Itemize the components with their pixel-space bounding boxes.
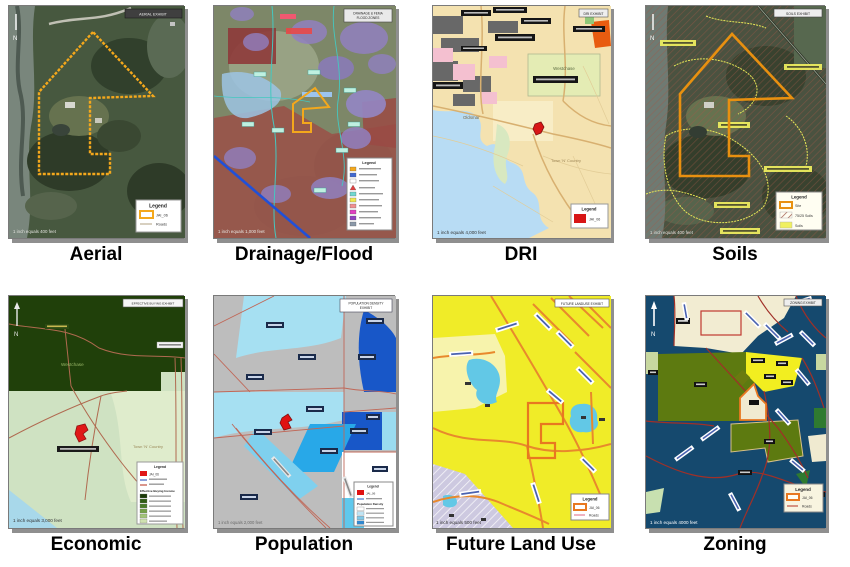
svg-text:SOILS EXHIBIT: SOILS EXHIBIT (786, 12, 810, 16)
svg-text:Legend: Legend (795, 487, 811, 492)
exhibit-title-box: POPULATION DENSITY EXHIBIT (340, 299, 392, 312)
exhibit-title-box: ZONING EXHIBIT (784, 299, 822, 306)
exhibit-title-box: FUTURE LANDUSE EXHIBIT (555, 299, 609, 307)
svg-text:JAI_06: JAI_06 (802, 496, 813, 500)
map-card-aerial: N AERIAL EXHIBIT Legend JAI_06 Roads 1 i… (8, 5, 184, 265)
svg-text:N: N (650, 36, 654, 42)
legend-box: Legend JAI_06 (571, 204, 608, 228)
map-card-population: POPULATION DENSITY EXHIBIT Legend JAI_06… (213, 295, 395, 555)
map-caption-aerial: Aerial (8, 245, 184, 265)
svg-text:FUTURE LANDUSE EXHIBIT: FUTURE LANDUSE EXHIBIT (561, 302, 603, 306)
legend-box: Legend JAI_06 Roads (136, 200, 181, 232)
svg-text:Legend: Legend (149, 204, 167, 210)
svg-text:EXHIBIT: EXHIBIT (360, 306, 372, 310)
scale-text: 1 inch equals 4,000 feet (437, 230, 487, 235)
svg-text:Legend: Legend (791, 195, 807, 200)
svg-text:Legend: Legend (154, 465, 166, 469)
exhibit-grid: N AERIAL EXHIBIT Legend JAI_06 Roads 1 i… (0, 0, 850, 567)
svg-text:Legend: Legend (582, 207, 597, 212)
map-caption-economic: Economic (8, 535, 184, 555)
map-thumbnail-population[interactable]: POPULATION DENSITY EXHIBIT Legend JAI_06… (213, 295, 395, 529)
legend-box: Legend (347, 158, 392, 230)
svg-text:Roads: Roads (589, 514, 599, 518)
svg-text:N: N (13, 36, 17, 42)
legend-box: Legend Site 75/25 Soils Soils (776, 192, 822, 230)
svg-text:Town 'N' Country: Town 'N' Country (551, 158, 581, 163)
exhibit-title-box: DRI EXHIBIT (579, 9, 608, 17)
svg-text:Oldsmar: Oldsmar (463, 115, 480, 120)
svg-text:Site: Site (795, 204, 801, 208)
svg-text:EFFECTIVE BUYING EXHIBIT: EFFECTIVE BUYING EXHIBIT (132, 302, 175, 306)
map-thumbnail-aerial[interactable]: N AERIAL EXHIBIT Legend JAI_06 Roads 1 i… (8, 5, 184, 239)
exhibit-title-box: SOILS EXHIBIT (774, 9, 822, 17)
legend-box: Legend JAI_06 Roads (784, 484, 823, 512)
scale-text: 1 inch equals 400 feet (650, 230, 694, 235)
map-art: Westchase Oldsmar Town 'N' Country (433, 6, 611, 238)
map-caption-zoning: Zoning (645, 535, 825, 555)
svg-text:N: N (14, 332, 18, 338)
svg-text:AERIAL EXHIBIT: AERIAL EXHIBIT (139, 13, 167, 17)
map-card-dri: Westchase Oldsmar Town 'N' Country DRI E… (432, 5, 610, 265)
map-card-zoning: N ZONING EXHIBIT Legend JAI_06 Roads 1 i… (645, 295, 825, 555)
svg-text:N: N (651, 332, 655, 338)
svg-text:75/25 Soils: 75/25 Soils (795, 214, 813, 218)
svg-text:JAI_06: JAI_06 (589, 506, 600, 510)
svg-text:Legend: Legend (583, 497, 598, 502)
exhibit-title-box: EFFECTIVE BUYING EXHIBIT (123, 299, 183, 307)
parcel-label-box (749, 400, 759, 405)
map-caption-population: Population (213, 535, 395, 555)
svg-text:Town 'N' Country: Town 'N' Country (133, 444, 163, 449)
svg-text:JAI_06: JAI_06 (149, 473, 159, 477)
scale-text: 1 inch equals 3,000 feet (13, 518, 63, 523)
map-card-drainage: DRAINAGE & FEMA FLOOD ZONES Legend (213, 5, 395, 265)
map-thumbnail-soils[interactable]: N SOILS EXHIBIT Legend Site 75/25 Soils … (645, 5, 825, 239)
svg-text:Effective Buying Income: Effective Buying Income (140, 489, 175, 493)
map-caption-drainage: Drainage/Flood (213, 245, 395, 265)
map-card-flu: FUTURE LANDUSE EXHIBIT Legend JAI_06 Roa… (432, 295, 610, 555)
svg-text:JAI_06: JAI_06 (589, 218, 600, 222)
map-thumbnail-economic[interactable]: Westchase Town 'N' Country N (8, 295, 184, 529)
map-caption-dri: DRI (432, 245, 610, 265)
svg-text:ZONING EXHIBIT: ZONING EXHIBIT (790, 301, 816, 305)
legend-box: Legend JAI_06 Effective Buying Income (137, 462, 183, 524)
map-card-economic: Westchase Town 'N' Country N (8, 295, 184, 555)
map-thumbnail-zoning[interactable]: N ZONING EXHIBIT Legend JAI_06 Roads 1 i… (645, 295, 825, 529)
map-thumbnail-dri[interactable]: Westchase Oldsmar Town 'N' Country DRI E… (432, 5, 610, 239)
map-caption-soils: Soils (645, 245, 825, 265)
svg-text:FLOOD ZONES: FLOOD ZONES (357, 16, 380, 20)
svg-text:POPULATION DENSITY: POPULATION DENSITY (348, 302, 384, 306)
exhibit-title-box: AERIAL EXHIBIT (125, 9, 182, 18)
scale-text: 1 inch equals 4000 feet (650, 520, 698, 525)
svg-text:Soils: Soils (795, 224, 803, 228)
svg-text:Population Density: Population Density (357, 502, 384, 506)
scale-text: 1 inch equals 400 feet (13, 229, 57, 234)
svg-text:Legend: Legend (367, 485, 378, 489)
svg-text:DRAINAGE & FEMA: DRAINAGE & FEMA (353, 12, 383, 16)
scale-text: 1 inch equals 500 feet (436, 520, 482, 525)
svg-text:DRI EXHIBIT: DRI EXHIBIT (584, 12, 604, 16)
scale-text: 1 inch equals 2,000 feet (218, 520, 263, 525)
svg-text:Roads: Roads (156, 223, 167, 227)
legend-box: Legend JAI_06 Roads (571, 494, 609, 520)
map-thumbnail-flu[interactable]: FUTURE LANDUSE EXHIBIT Legend JAI_06 Roa… (432, 295, 610, 529)
exhibit-title-box: DRAINAGE & FEMA FLOOD ZONES (344, 9, 392, 22)
map-card-soils: N SOILS EXHIBIT Legend Site 75/25 Soils … (645, 5, 825, 265)
scale-text: 1 inch equals 1,000 feet (218, 229, 265, 234)
svg-text:Roads: Roads (802, 505, 812, 509)
svg-text:Westchase: Westchase (553, 66, 575, 71)
svg-text:Legend: Legend (362, 161, 376, 165)
legend-box: Legend JAI_06 Population Density (354, 482, 393, 526)
svg-text:JAI_06: JAI_06 (366, 492, 376, 496)
map-caption-flu: Future Land Use (432, 535, 610, 555)
map-thumbnail-drainage[interactable]: DRAINAGE & FEMA FLOOD ZONES Legend (213, 5, 395, 239)
svg-text:Westchase: Westchase (61, 362, 84, 367)
svg-text:JAI_06: JAI_06 (156, 214, 168, 218)
